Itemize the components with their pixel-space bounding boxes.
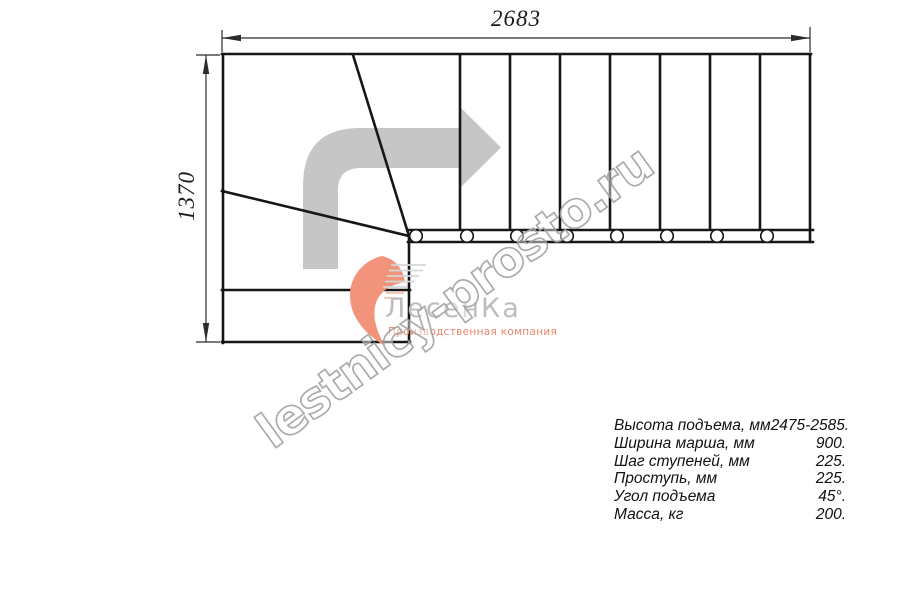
spec-label: Масса, кг: [614, 506, 683, 524]
dimension-height-label: 1370: [174, 134, 200, 258]
bolt-circle: [561, 230, 574, 243]
bolt-circle: [461, 230, 474, 243]
spec-row: Масса, кг 200.: [614, 506, 846, 524]
spec-value: 225.: [816, 470, 846, 488]
stringer-bolts: [410, 230, 774, 243]
spec-row: Шаг ступеней, мм 225.: [614, 453, 846, 471]
arrowhead-left: [222, 35, 241, 41]
stair-plan-page: ЛесенКа Производственная компания 2683 1…: [0, 0, 900, 600]
dimension-width-label: 2683: [446, 6, 586, 32]
bolt-circle: [511, 230, 524, 243]
company-name: ЛесенКа: [385, 293, 521, 324]
spec-row: Угол подъема 45°.: [614, 488, 846, 506]
arrowhead-up: [203, 55, 209, 74]
spec-row: Проступь, мм 225.: [614, 470, 846, 488]
spec-value: 225.: [816, 453, 846, 471]
bolt-circle: [761, 230, 774, 243]
turn-direction-arrow-icon: [303, 107, 501, 269]
arrowhead-right: [791, 35, 810, 41]
spec-label: Высота подъема, мм: [614, 417, 771, 435]
spec-value: 2475-2585.: [771, 417, 849, 435]
bolt-circle: [611, 230, 624, 243]
company-tagline: Производственная компания: [388, 326, 557, 338]
spec-row: Ширина марша, мм 900.: [614, 435, 846, 453]
spec-value: 45°.: [818, 488, 846, 506]
spec-label: Проступь, мм: [614, 470, 717, 488]
bolt-circle: [410, 230, 423, 243]
spec-label: Угол подъема: [614, 488, 715, 506]
spec-label: Шаг ступеней, мм: [614, 453, 750, 471]
spec-value: 900.: [816, 435, 846, 453]
arrowhead-down: [203, 323, 209, 342]
spec-row: Высота подъема, мм 2475-2585.: [614, 417, 846, 435]
tread-lines: [460, 54, 760, 230]
bolt-circle: [661, 230, 674, 243]
bolt-circle: [711, 230, 724, 243]
specifications-table: Высота подъема, мм 2475-2585. Ширина мар…: [614, 417, 846, 524]
spec-label: Ширина марша, мм: [614, 435, 755, 453]
spec-value: 200.: [816, 506, 846, 524]
